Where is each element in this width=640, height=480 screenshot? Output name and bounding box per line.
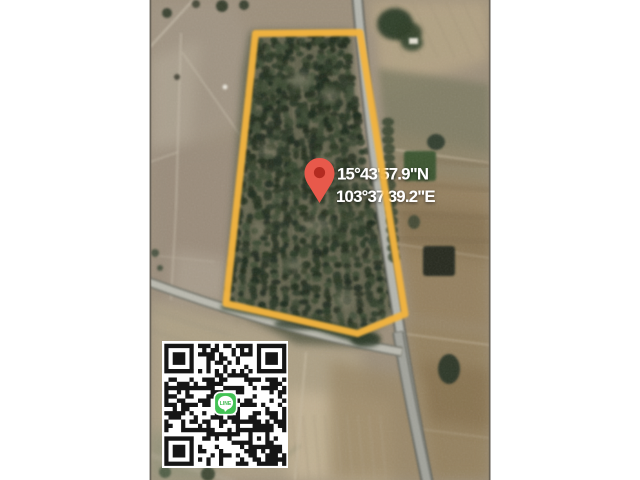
svg-text:LINE: LINE bbox=[220, 401, 232, 407]
